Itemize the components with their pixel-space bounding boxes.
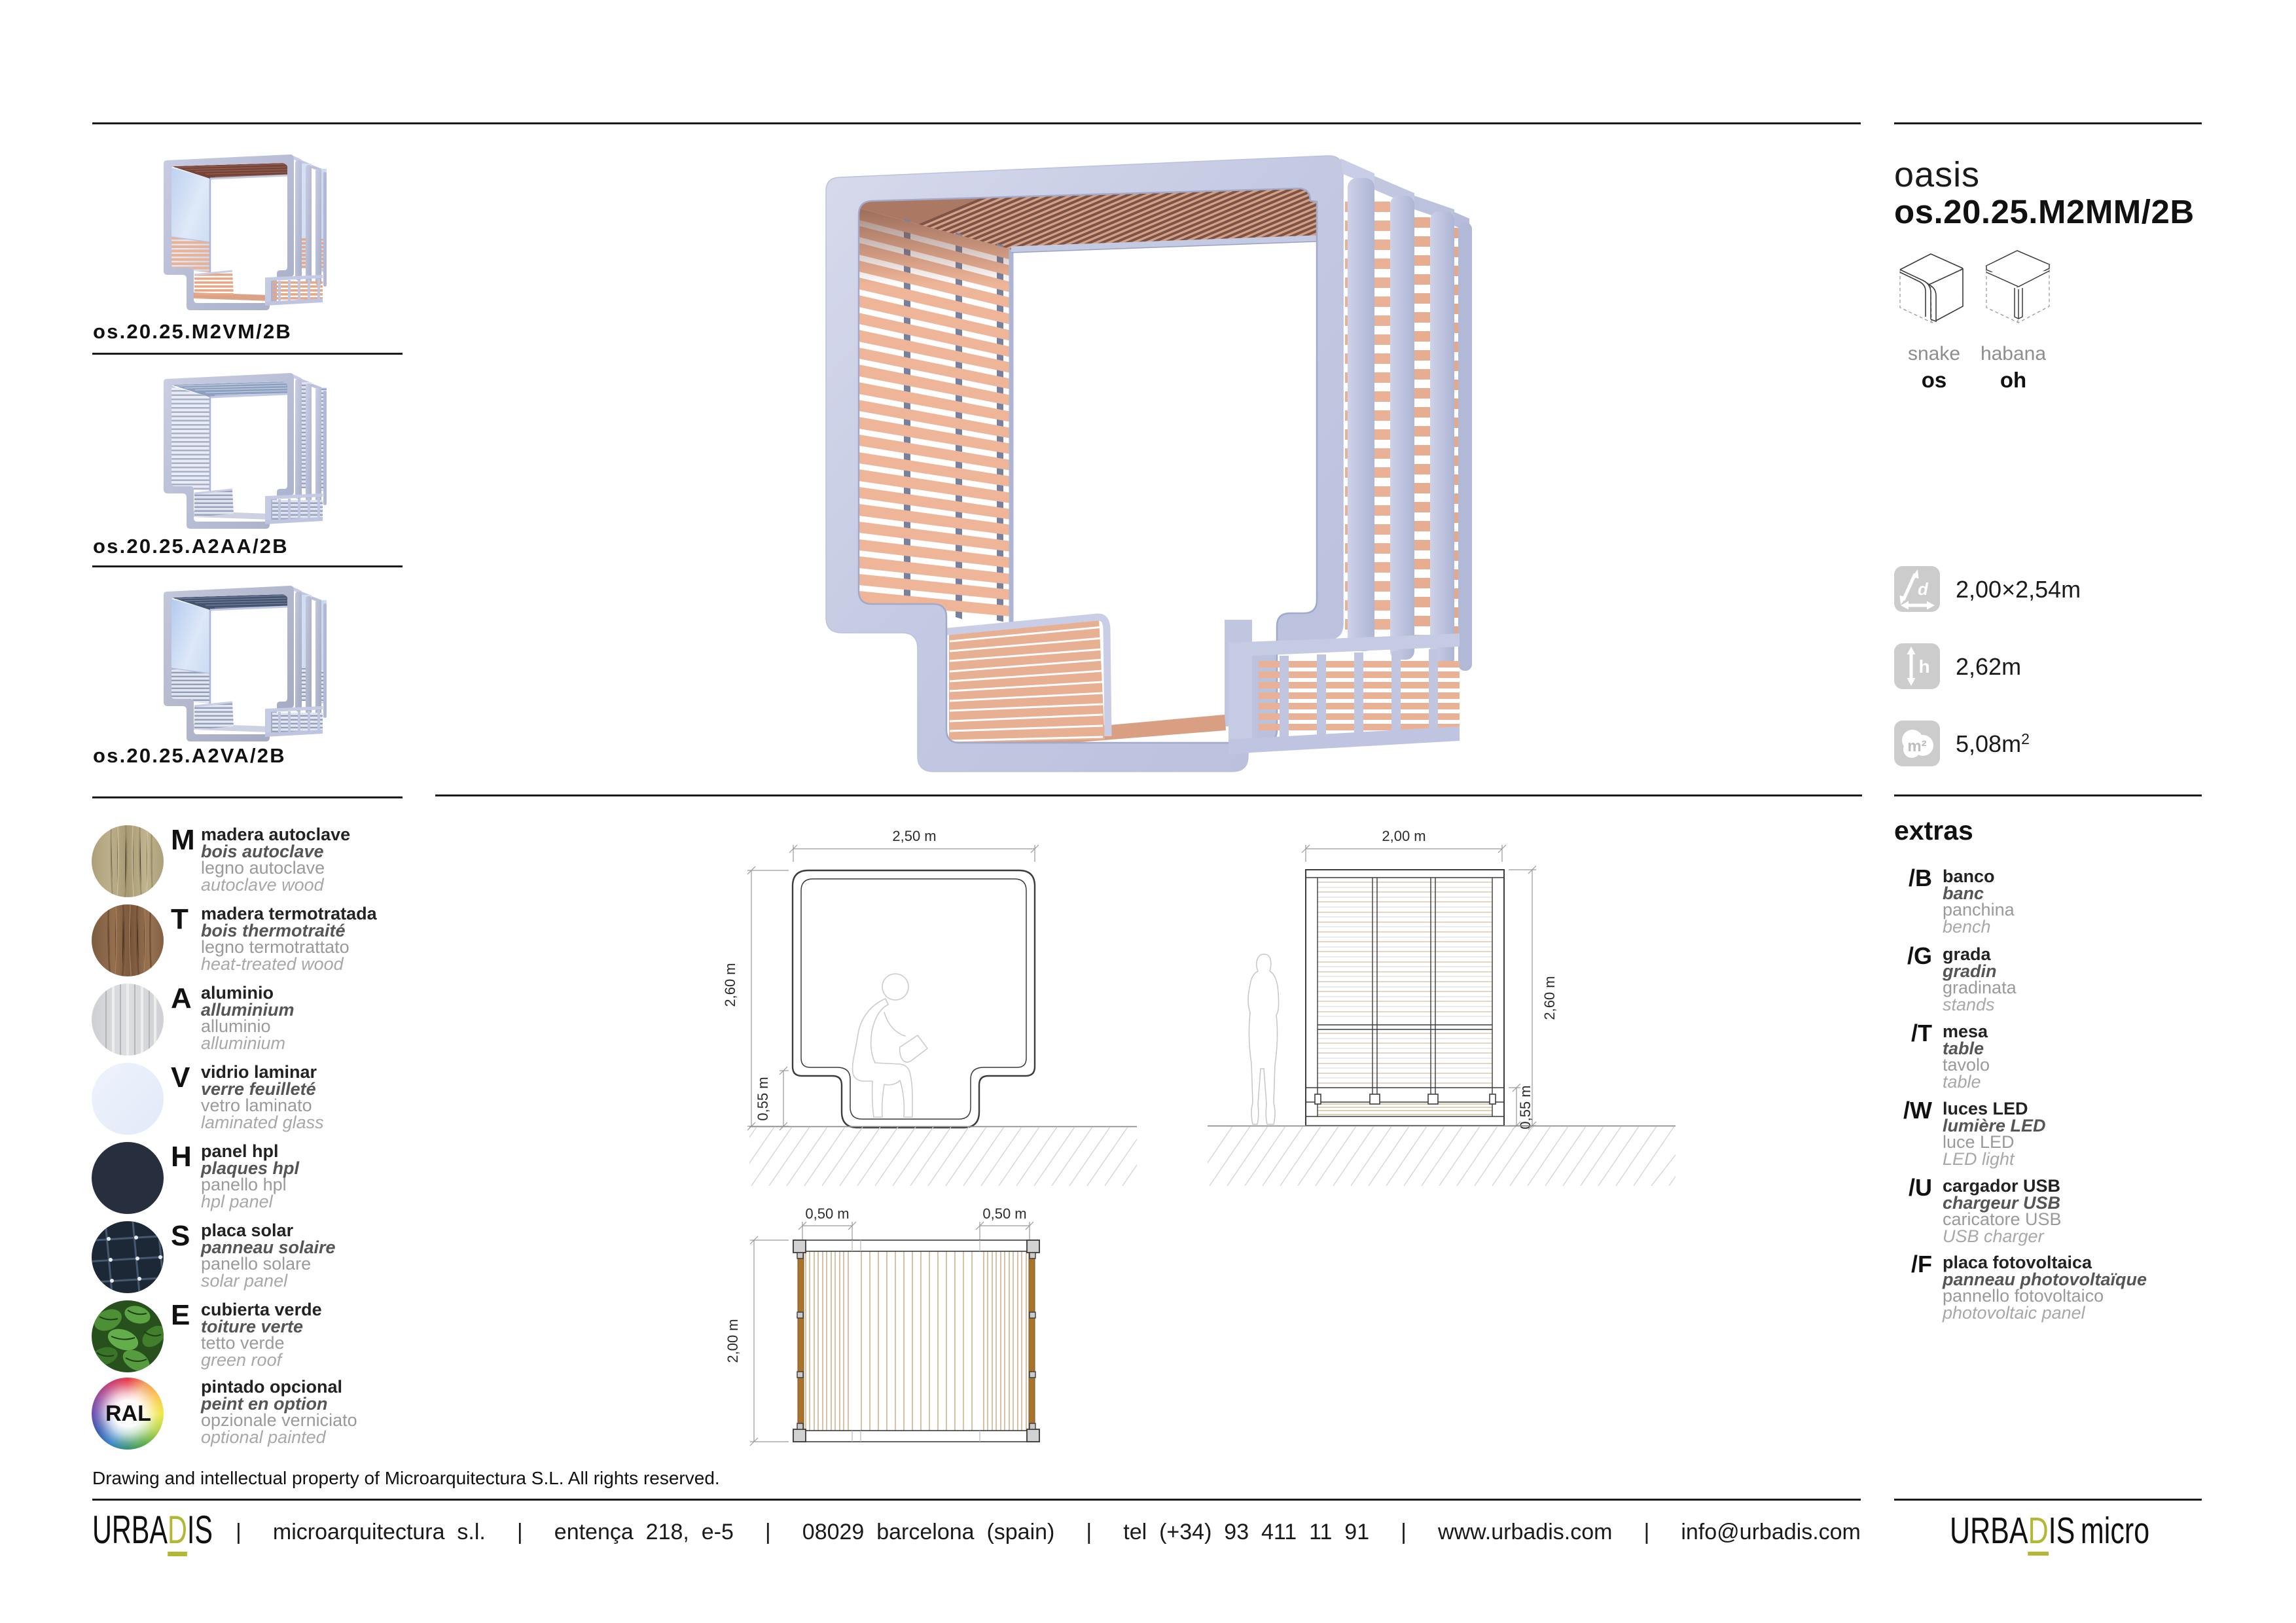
- svg-text:2,00 m: 2,00 m: [1382, 828, 1426, 844]
- svg-text:2,00 m: 2,00 m: [725, 1319, 741, 1363]
- svg-text:2,60 m: 2,60 m: [1541, 976, 1558, 1020]
- svg-text:0,55 m: 0,55 m: [755, 1077, 771, 1120]
- svg-text:0,50 m: 0,50 m: [982, 1205, 1026, 1222]
- svg-text:2,50 m: 2,50 m: [892, 828, 936, 844]
- svg-text:0,50 m: 0,50 m: [805, 1205, 849, 1222]
- svg-text:d: d: [1918, 579, 1929, 599]
- svg-text:h: h: [1918, 656, 1929, 677]
- svg-text:0,55 m: 0,55 m: [1517, 1085, 1534, 1129]
- svg-text:2,60 m: 2,60 m: [722, 963, 738, 1007]
- svg-text:m²: m²: [1907, 738, 1926, 755]
